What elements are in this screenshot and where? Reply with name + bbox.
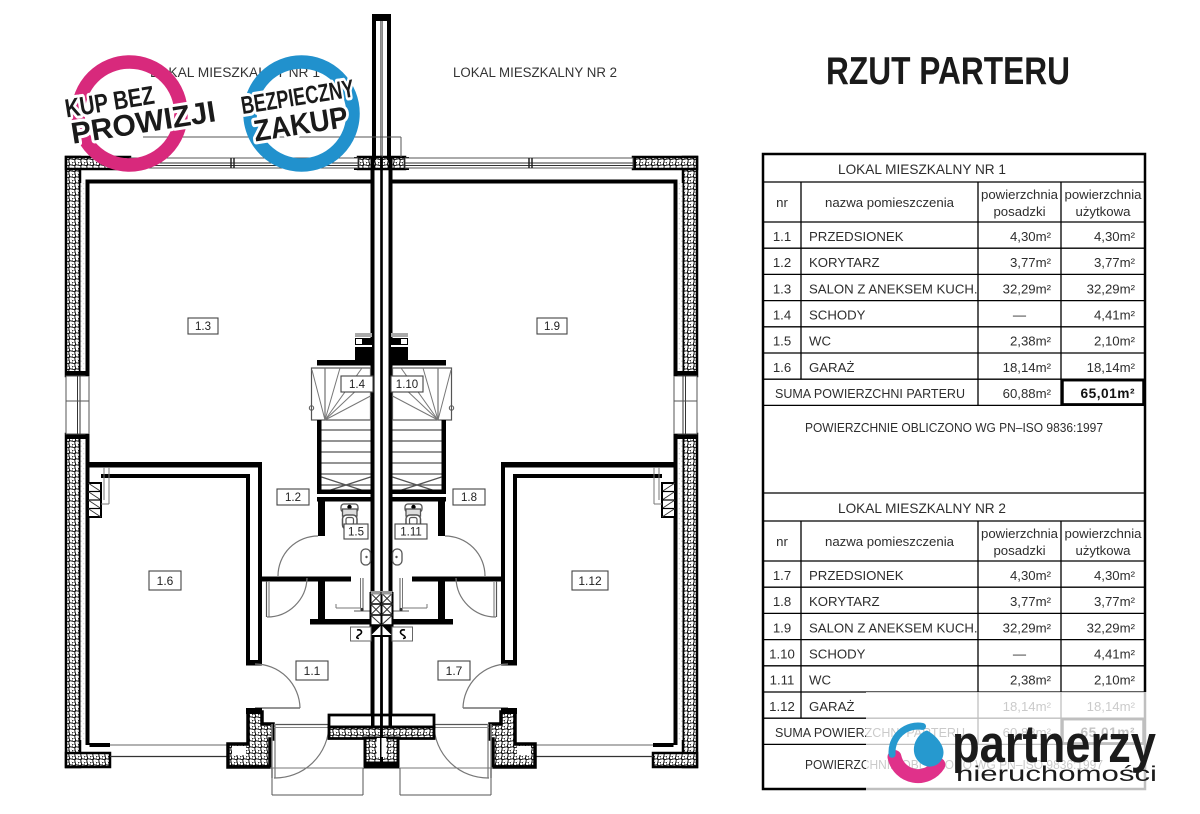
svg-text:60,88m²: 60,88m² [1003,386,1052,401]
svg-text:32,29m²: 32,29m² [1087,281,1136,296]
svg-text:GARAŻ: GARAŻ [809,360,854,375]
svg-text:65,01m²: 65,01m² [1081,386,1135,401]
svg-text:3,77m²: 3,77m² [1094,255,1136,270]
svg-text:RZUT PARTERU: RZUT PARTERU [826,50,1070,93]
svg-text:WC: WC [809,334,831,349]
svg-text:użytkowa: użytkowa [1076,204,1132,219]
svg-text:1.8: 1.8 [773,594,791,609]
svg-text:SCHODY: SCHODY [809,307,866,322]
svg-text:—: — [1013,646,1027,661]
svg-text:LOKAL MIESZKALNY NR 2: LOKAL MIESZKALNY NR 2 [838,500,1006,516]
svg-text:SUMA POWIERZCHNI PARTERU: SUMA POWIERZCHNI PARTERU [775,386,965,401]
svg-text:1.1: 1.1 [773,229,791,244]
svg-text:18,14m²: 18,14m² [1003,360,1052,375]
svg-text:4,41m²: 4,41m² [1094,307,1136,322]
svg-text:1.6: 1.6 [773,360,791,375]
svg-text:—: — [1013,307,1027,322]
svg-text:1.1: 1.1 [304,664,321,678]
svg-text:1.9: 1.9 [773,620,791,635]
svg-text:1.12: 1.12 [769,699,795,714]
svg-text:1.10: 1.10 [396,379,418,391]
svg-text:PRZEDSIONEK: PRZEDSIONEK [809,568,904,583]
svg-text:32,29m²: 32,29m² [1003,281,1052,296]
svg-text:1.6: 1.6 [157,574,174,588]
svg-text:powierzchnia: powierzchnia [1065,526,1143,541]
svg-text:SCHODY: SCHODY [809,646,866,661]
svg-text:1.9: 1.9 [544,321,560,333]
svg-text:1.7: 1.7 [773,568,791,583]
svg-text:4,30m²: 4,30m² [1010,568,1052,583]
svg-text:1.8: 1.8 [461,492,477,504]
svg-text:PRZEDSIONEK: PRZEDSIONEK [809,229,904,244]
svg-text:1.7: 1.7 [446,664,463,678]
svg-text:1.12: 1.12 [578,574,602,588]
svg-text:nieruchomości: nieruchomości [956,763,1157,786]
svg-text:powierzchnia: powierzchnia [981,187,1059,202]
svg-text:KORYTARZ: KORYTARZ [809,594,880,609]
svg-text:1.3: 1.3 [773,281,791,296]
svg-text:4,30m²: 4,30m² [1010,229,1052,244]
svg-text:nazwa pomieszczenia: nazwa pomieszczenia [825,195,955,210]
svg-text:powierzchnia: powierzchnia [981,526,1059,541]
svg-text:1.2: 1.2 [773,255,791,270]
svg-text:2,10m²: 2,10m² [1094,673,1136,688]
svg-text:SALON Z ANEKSEM KUCH.: SALON Z ANEKSEM KUCH. [809,620,978,635]
svg-text:KORYTARZ: KORYTARZ [809,255,880,270]
svg-text:WC: WC [809,673,831,688]
svg-text:LOKAL MIESZKALNY NR 2: LOKAL MIESZKALNY NR 2 [453,65,617,80]
svg-text:3,77m²: 3,77m² [1010,255,1052,270]
svg-text:1.4: 1.4 [349,379,366,391]
svg-text:18,14m²: 18,14m² [1087,360,1136,375]
svg-text:1.4: 1.4 [773,307,791,322]
svg-text:2,10m²: 2,10m² [1094,334,1136,349]
svg-text:3,77m²: 3,77m² [1094,594,1136,609]
svg-text:LOKAL MIESZKALNY NR 1: LOKAL MIESZKALNY NR 1 [838,161,1006,177]
svg-text:posadzki: posadzki [993,543,1045,558]
svg-text:1.2: 1.2 [285,492,301,504]
svg-text:3,77m²: 3,77m² [1010,594,1052,609]
svg-text:4,30m²: 4,30m² [1094,568,1136,583]
svg-text:1.5: 1.5 [773,334,791,349]
svg-text:posadzki: posadzki [993,204,1045,219]
svg-text:32,29m²: 32,29m² [1003,620,1052,635]
svg-text:nr: nr [776,195,788,210]
svg-text:SALON Z ANEKSEM KUCH.: SALON Z ANEKSEM KUCH. [809,281,978,296]
svg-text:32,29m²: 32,29m² [1087,620,1136,635]
svg-text:2,38m²: 2,38m² [1010,334,1052,349]
svg-text:GARAŻ: GARAŻ [809,699,854,714]
svg-text:2,38m²: 2,38m² [1010,673,1052,688]
svg-text:nr: nr [776,534,788,549]
svg-text:1.10: 1.10 [769,646,795,661]
svg-text:4,41m²: 4,41m² [1094,646,1136,661]
svg-text:1.11: 1.11 [400,527,422,539]
svg-text:użytkowa: użytkowa [1076,543,1132,558]
svg-text:1.5: 1.5 [348,527,364,539]
svg-text:4,30m²: 4,30m² [1094,229,1136,244]
svg-text:POWIERZCHNIE OBLICZONO WG PN–I: POWIERZCHNIE OBLICZONO WG PN–ISO 9836:19… [805,420,1103,435]
svg-text:nazwa pomieszczenia: nazwa pomieszczenia [825,534,955,549]
svg-text:1.3: 1.3 [195,321,211,333]
svg-text:1.11: 1.11 [770,673,795,688]
svg-text:powierzchnia: powierzchnia [1065,187,1143,202]
